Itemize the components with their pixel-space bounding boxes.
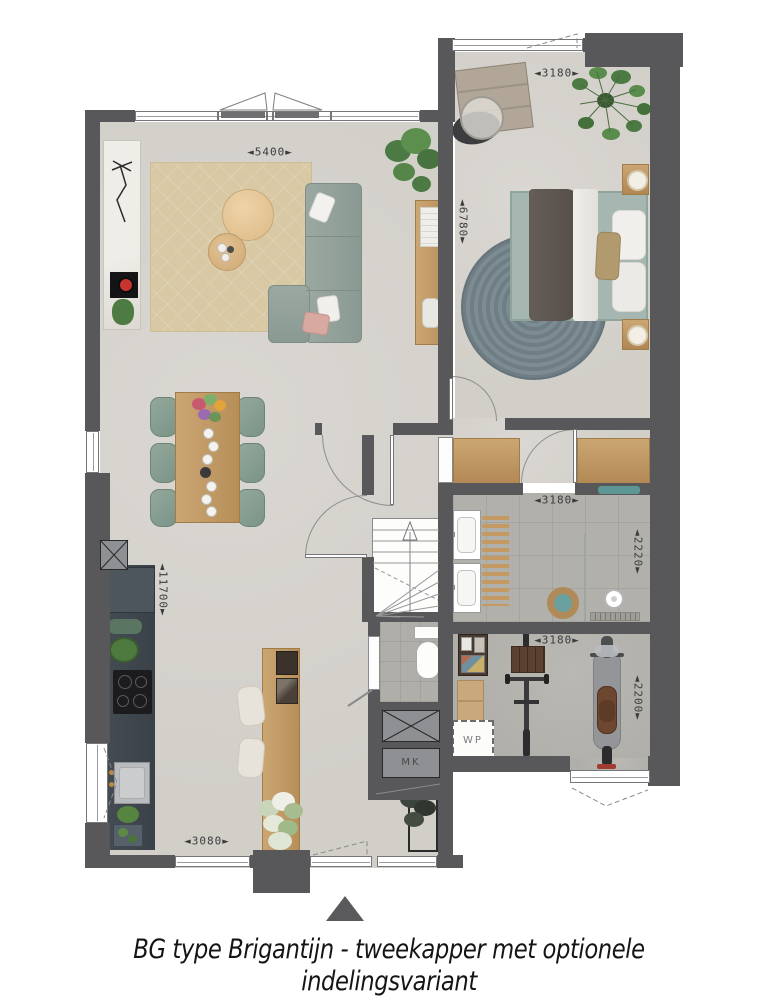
bedroom-plant <box>611 70 631 84</box>
sink-faucet <box>109 782 114 787</box>
moving-boxes <box>457 680 484 722</box>
bath-towel <box>598 486 640 494</box>
dining-chair <box>237 397 265 437</box>
french-door-panel <box>221 112 265 118</box>
meter-cupboard-label: MK <box>382 748 440 778</box>
table-decor-dot <box>221 253 230 262</box>
hall-door-leaf[interactable] <box>390 435 394 505</box>
exterior-wall-right <box>650 60 680 786</box>
sofa-seam <box>306 290 361 291</box>
window-mullion <box>217 111 219 121</box>
toilet-wall-left <box>368 622 380 636</box>
dining-chair <box>150 489 178 527</box>
bed-duvet-dark <box>529 189 577 321</box>
dimension-label-bedroom-width: ◄3180► <box>534 68 580 79</box>
living-door-leaf[interactable] <box>305 554 367 558</box>
bicycle-frame <box>524 681 529 731</box>
dining-chair <box>237 443 265 483</box>
hall-opening <box>438 437 453 483</box>
desk-chair <box>236 737 265 779</box>
kitchen-sink-basin <box>119 767 145 799</box>
heat-pump-label: WP <box>452 720 494 762</box>
desk-plant <box>284 803 303 819</box>
dimension-label-bathroom-width: ◄3180► <box>534 495 580 506</box>
pendant-light <box>201 494 212 505</box>
bedroom-hall-wall <box>505 418 650 430</box>
dining-window-left <box>86 431 99 473</box>
record-disc <box>118 277 134 293</box>
table-lamp <box>627 170 648 191</box>
pendant-light-dark <box>200 467 211 478</box>
motorcycle-windshield <box>595 645 619 657</box>
hall-wall-horizontal <box>393 423 438 435</box>
dining-chair <box>150 443 178 483</box>
bedroom-plant <box>572 78 588 90</box>
kitchen-plant <box>109 637 139 663</box>
coffee-table-small <box>208 233 246 271</box>
fridge <box>105 567 155 613</box>
entry-bonsai-plant <box>404 812 424 827</box>
shower-drain <box>590 612 640 621</box>
exterior-wall-top <box>85 110 135 122</box>
entrance-arrow <box>326 896 364 921</box>
fireplace-plant <box>112 299 134 325</box>
bath-stool <box>547 587 579 619</box>
cooktop-burner <box>135 676 147 688</box>
bedroom-round-chair <box>460 96 504 140</box>
table-flowers <box>209 412 221 422</box>
desk-plant <box>268 832 292 850</box>
window-mullion <box>266 111 268 121</box>
table-lamp <box>627 325 648 346</box>
motorcycle-taillight <box>597 764 616 769</box>
toilet-door-opening[interactable] <box>368 636 380 690</box>
shaft-box-left-wall <box>100 540 128 570</box>
porch-block <box>253 850 310 893</box>
toilet-cistern <box>414 626 440 639</box>
hall-wall-vertical <box>362 557 374 612</box>
bath-slat-mat <box>482 516 509 606</box>
sink-faucet <box>109 770 114 775</box>
entry-sidelight-window <box>377 856 437 867</box>
bed-sheet-white <box>573 189 598 321</box>
desk-frame <box>276 651 298 675</box>
shelf-photo <box>461 637 472 651</box>
desk-frame <box>276 678 298 704</box>
pendant-light <box>206 506 217 517</box>
front-door[interactable] <box>310 856 372 867</box>
french-door-swing-triangles <box>220 93 322 110</box>
exterior-wall-left <box>85 110 100 431</box>
exterior-wall-bottom <box>85 855 175 868</box>
shower-head-dot <box>611 596 617 602</box>
dimension-label-bathroom-depth: ◄2220► <box>633 529 644 575</box>
tray-plant <box>128 835 137 843</box>
interior-wall-spine <box>438 485 453 868</box>
living-plant <box>393 163 415 181</box>
exterior-wall-left <box>85 473 110 743</box>
desk-chair <box>236 685 267 728</box>
bathroom-wall-bottom <box>438 622 653 634</box>
dimension-label-living-width: ◄5400► <box>247 147 293 158</box>
dimension-label-storage-width: ◄3180► <box>534 635 580 646</box>
bathroom-wall-top <box>438 483 523 495</box>
bicycle-pedals <box>514 700 539 704</box>
storage-wall-bottom <box>648 756 680 786</box>
kitchen-window-left <box>86 743 108 823</box>
stairs-wall-bottom <box>362 612 453 622</box>
hall-wall-horizontal <box>315 423 322 435</box>
window-mullion <box>272 111 274 121</box>
bed-accent-pillow <box>595 231 621 280</box>
hallway-wardrobe <box>577 438 650 487</box>
table-decor-dot <box>227 246 234 253</box>
washbasin-bowl <box>457 570 476 606</box>
kitchen-plant <box>117 806 139 823</box>
cooktop-burner <box>118 675 132 689</box>
plan-caption: BG type Brigantijn - tweekapper met opti… <box>62 934 716 999</box>
washbasin-bowl <box>457 517 476 553</box>
bicycle-crate <box>511 646 545 673</box>
shelf-photo-color <box>461 655 485 673</box>
pendant-light <box>203 428 214 439</box>
bathroom-door-leaf[interactable] <box>573 429 577 483</box>
exterior-wall-bottom <box>437 855 463 868</box>
kitchen-utensils <box>108 619 142 634</box>
dimension-label-bedroom-depth: ◄6780► <box>458 199 469 245</box>
bedroom-plant <box>589 67 607 79</box>
tray-plant <box>118 828 128 837</box>
cooktop-burner <box>133 694 147 708</box>
bedroom-plant <box>602 128 620 140</box>
toilet-bowl <box>416 641 440 679</box>
motorcycle-rear-wheel <box>602 746 612 766</box>
bedroom-plant <box>626 120 642 132</box>
pendant-light <box>208 441 219 452</box>
staircase <box>372 518 440 618</box>
bicycle-grip <box>505 674 510 684</box>
bedroom-plant <box>578 117 594 129</box>
motorcycle-seat-pad <box>599 700 615 722</box>
pendant-light <box>206 481 217 492</box>
shelf-photo <box>474 637 485 653</box>
dining-chair <box>150 397 178 437</box>
pendant-light <box>202 454 213 465</box>
bedroom-plant <box>637 103 651 115</box>
bedroom-window-top <box>452 39 583 51</box>
storage-door-swing <box>572 788 648 806</box>
bedroom-door-leaf[interactable] <box>449 378 453 420</box>
sofa-pillow-pink <box>302 311 331 336</box>
bicycle-rear-wheel <box>523 729 530 757</box>
table-flowers <box>214 400 226 411</box>
french-door-panel <box>275 112 319 118</box>
storage-door[interactable] <box>570 770 650 783</box>
kitchen-window-bottom <box>175 856 250 867</box>
shower-screen <box>584 534 586 622</box>
table-decor-dot <box>217 243 227 253</box>
living-plant <box>412 176 431 192</box>
dimension-label-kitchen-width: ◄3080► <box>184 836 230 847</box>
dining-chair <box>237 489 265 527</box>
bedroom-plant <box>629 85 645 97</box>
sofa-seam <box>306 236 361 237</box>
bedroom-plant-center <box>597 93 614 108</box>
hall-wall-vertical <box>362 435 374 495</box>
shaft-box-utility <box>382 710 440 742</box>
dimension-label-plan-depth: ◄11700► <box>158 563 169 616</box>
toilet-wall-left <box>368 690 380 702</box>
hallway-wardrobe <box>453 438 520 487</box>
cooktop-burner <box>117 695 129 707</box>
floorplan-page: WP MK <box>0 0 778 1000</box>
dimension-label-storage-depth: ◄2200► <box>633 675 644 721</box>
window-mullion <box>330 111 332 121</box>
bicycle-grip <box>544 674 549 684</box>
